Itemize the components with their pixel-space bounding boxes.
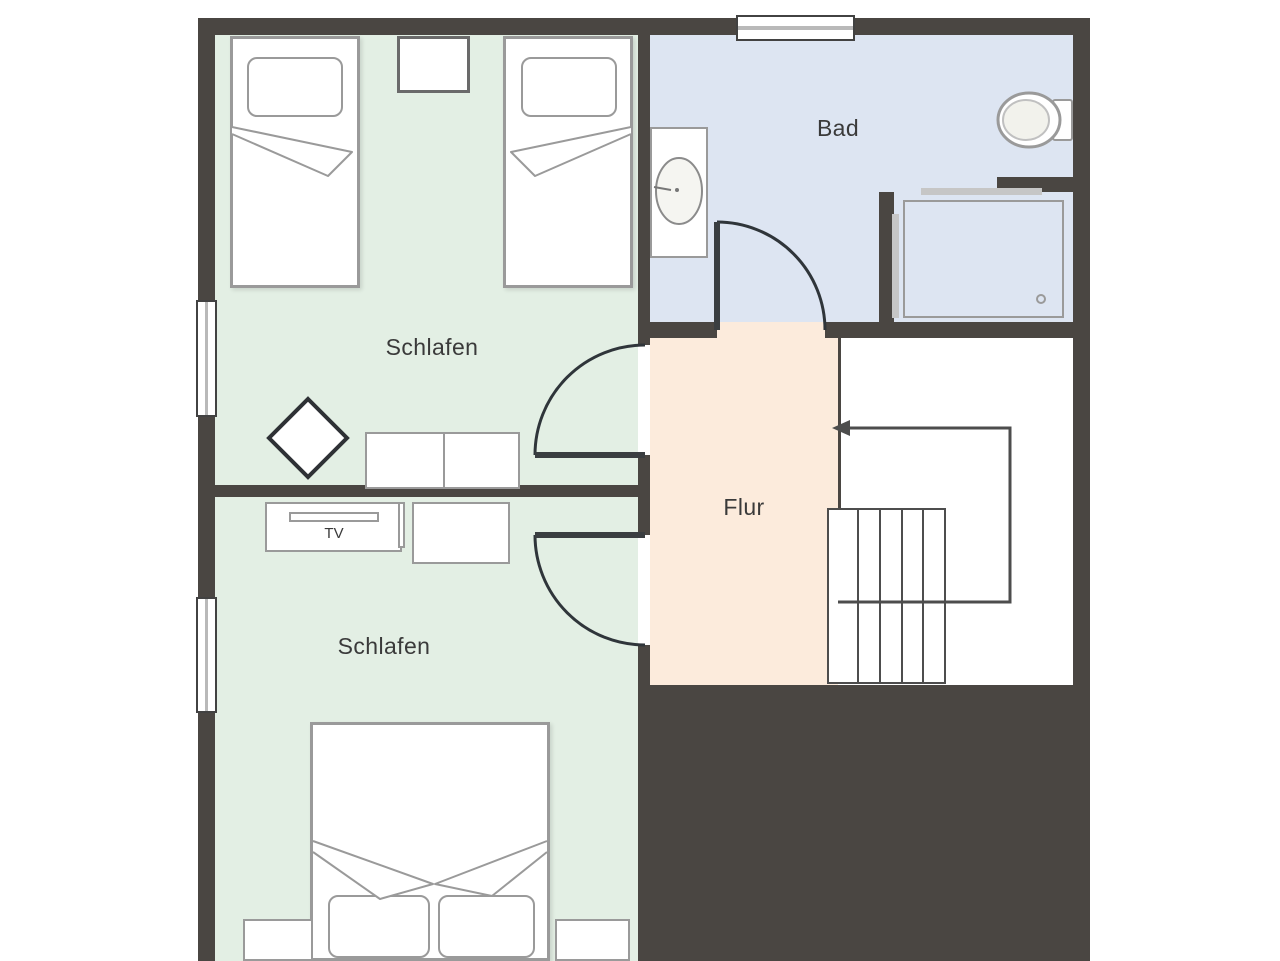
pillow (247, 57, 343, 117)
toilet-tank (1052, 99, 1073, 141)
washbasin-counter (650, 127, 708, 258)
wall-top (198, 18, 1090, 35)
wall-bath-bottom-right (825, 322, 1073, 338)
nightstand-bottom-right (555, 919, 630, 961)
bedroom-top-door-opening (638, 345, 650, 455)
wall-bath-bottom-left (650, 322, 717, 338)
tv-screen (289, 512, 379, 522)
wall-hall-stairs-separator (838, 338, 841, 683)
wall-right (1073, 18, 1090, 961)
dresser (412, 502, 510, 564)
hallway-door-opening (717, 322, 825, 338)
floor-plan: Schlafen Schlafen Bad Flur TV (0, 0, 1280, 961)
bedroom-bottom-door-opening (638, 535, 650, 645)
wall-bedroom-bath (638, 35, 650, 345)
pillow (328, 895, 430, 958)
room-label-hallway: Flur (669, 494, 819, 521)
shower-glass-top (921, 188, 1042, 195)
nightstand-between-beds (397, 36, 470, 93)
nightstand-bottom-left (243, 919, 313, 961)
window-left-upper (196, 300, 217, 417)
window-bathroom-top (736, 15, 855, 41)
cabinet-side-panel (398, 502, 405, 548)
room-label-bedroom-bottom: Schlafen (309, 633, 459, 660)
wardrobe-divider (443, 434, 445, 487)
window-left-lower (196, 597, 217, 713)
room-label-bathroom: Bad (763, 115, 913, 142)
pillow (521, 57, 617, 117)
staircase-floor (842, 338, 1073, 685)
wardrobe (365, 432, 520, 489)
shower-glass-left (892, 214, 899, 318)
unexposed-area (638, 685, 1073, 961)
wall-below-lower-door (638, 645, 650, 685)
room-label-bedroom-top: Schlafen (357, 334, 507, 361)
pillow (438, 895, 535, 958)
wall-left (198, 18, 215, 961)
tv-label: TV (304, 525, 364, 542)
shower-tray (903, 200, 1064, 318)
